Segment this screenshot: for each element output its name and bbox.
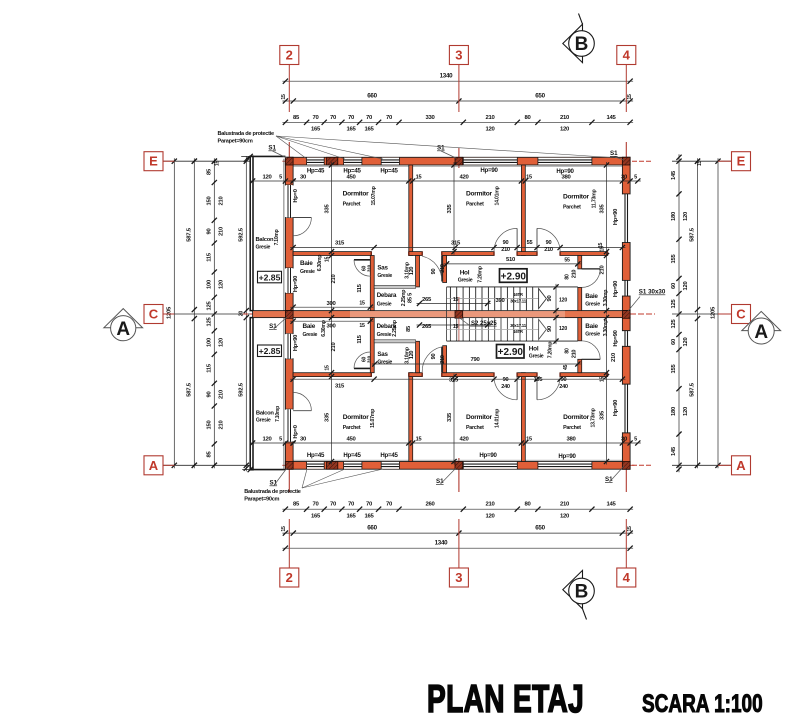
svg-text:70: 70 (312, 502, 319, 508)
svg-text:20: 20 (239, 311, 245, 317)
svg-text:145: 145 (671, 170, 677, 180)
svg-text:E: E (149, 154, 158, 169)
svg-text:120: 120 (683, 338, 689, 347)
svg-text:210: 210 (501, 247, 510, 253)
svg-text:90: 90 (547, 296, 553, 302)
svg-text:Hp=90: Hp=90 (558, 453, 576, 460)
svg-text:15: 15 (453, 324, 459, 330)
svg-text:335: 335 (324, 412, 330, 422)
svg-text:120: 120 (683, 212, 689, 221)
svg-text:335: 335 (599, 410, 605, 420)
svg-text:Balustrada de protectie: Balustrada de protectie (244, 489, 301, 495)
svg-text:3: 3 (455, 48, 462, 63)
svg-text:592.5: 592.5 (239, 382, 245, 396)
svg-text:15: 15 (359, 301, 365, 307)
svg-text:7.10mp: 7.10mp (274, 229, 280, 245)
svg-text:Gresie: Gresie (458, 278, 473, 284)
svg-text:Hp=0: Hp=0 (293, 425, 299, 438)
svg-text:210: 210 (440, 264, 446, 273)
svg-text:587.5: 587.5 (187, 382, 193, 396)
svg-text:Dormitor: Dormitor (563, 414, 590, 421)
svg-text:7.10mp: 7.10mp (275, 406, 281, 422)
svg-text:650: 650 (535, 93, 545, 100)
svg-text:13.73mp: 13.73mp (590, 408, 596, 427)
svg-text:165: 165 (346, 127, 356, 133)
svg-text:310: 310 (367, 264, 372, 272)
svg-text:1205: 1205 (167, 306, 173, 319)
svg-text:335: 335 (324, 204, 330, 214)
svg-text:2: 2 (286, 570, 293, 585)
svg-text:210: 210 (219, 227, 225, 236)
svg-text:510: 510 (506, 257, 516, 263)
svg-text:80: 80 (524, 115, 531, 121)
svg-text:6.30mp: 6.30mp (321, 320, 327, 336)
svg-text:Hp=45: Hp=45 (380, 452, 398, 459)
svg-text:16TR: 16TR (513, 329, 524, 334)
svg-text:210: 210 (331, 275, 337, 284)
svg-text:390: 390 (495, 298, 505, 304)
svg-text:180: 180 (671, 407, 677, 416)
svg-text:450: 450 (346, 437, 356, 443)
svg-text:E: E (737, 154, 746, 169)
svg-text:Hp=45: Hp=45 (343, 452, 361, 459)
svg-text:60: 60 (671, 283, 677, 289)
svg-text:Hol: Hol (529, 346, 539, 353)
svg-text:70: 70 (386, 502, 393, 508)
svg-text:15.07mp: 15.07mp (370, 409, 376, 428)
svg-text:210: 210 (560, 115, 570, 121)
svg-text:Baie: Baie (585, 293, 598, 300)
svg-text:Sas: Sas (377, 351, 388, 358)
svg-text:210: 210 (571, 270, 577, 279)
svg-text:Hp=45: Hp=45 (380, 168, 398, 175)
svg-text:B: B (575, 582, 589, 603)
svg-text:S2 25x25: S2 25x25 (471, 321, 497, 327)
svg-text:Parchet: Parchet (563, 425, 581, 431)
svg-text:1340: 1340 (440, 73, 454, 80)
svg-text:Gresie: Gresie (256, 245, 271, 251)
svg-text:S1: S1 (437, 145, 445, 152)
svg-text:15: 15 (627, 526, 633, 532)
svg-text:Hp=90: Hp=90 (613, 209, 619, 225)
svg-text:210: 210 (611, 353, 617, 362)
svg-text:120: 120 (219, 338, 225, 347)
svg-text:7.20mp: 7.20mp (478, 266, 484, 282)
svg-text:2: 2 (286, 48, 293, 63)
svg-text:Parchet: Parchet (466, 202, 484, 208)
svg-text:+2.90: +2.90 (498, 347, 524, 358)
svg-text:90: 90 (503, 240, 509, 246)
svg-text:Gresie: Gresie (303, 332, 318, 338)
svg-text:240: 240 (559, 384, 568, 390)
svg-text:210: 210 (440, 355, 446, 364)
svg-text:70: 70 (366, 115, 373, 121)
svg-text:A: A (736, 458, 746, 473)
svg-text:4: 4 (623, 48, 631, 63)
svg-text:30: 30 (300, 437, 307, 443)
svg-text:15: 15 (598, 243, 604, 249)
svg-text:Parapet=90cm: Parapet=90cm (218, 139, 253, 145)
svg-text:85: 85 (406, 326, 412, 332)
svg-text:+2.85: +2.85 (259, 272, 281, 282)
svg-text:5: 5 (279, 437, 282, 443)
svg-text:650: 650 (535, 525, 545, 532)
svg-text:Parchet: Parchet (466, 425, 484, 431)
svg-text:Gresie: Gresie (377, 332, 392, 338)
svg-text:180: 180 (671, 212, 677, 221)
svg-text:85: 85 (207, 451, 213, 458)
svg-text:14.01mp: 14.01mp (495, 186, 501, 205)
svg-text:120: 120 (485, 127, 495, 133)
svg-text:15: 15 (453, 297, 459, 303)
svg-text:Baie: Baie (585, 323, 598, 330)
svg-text:Gresie: Gresie (585, 332, 600, 338)
svg-text:16TR: 16TR (513, 292, 524, 297)
svg-text:90: 90 (207, 392, 213, 398)
svg-text:210: 210 (219, 390, 225, 399)
svg-text:85 5: 85 5 (407, 293, 413, 303)
svg-text:100: 100 (207, 280, 213, 289)
svg-text:300: 300 (326, 324, 336, 330)
svg-text:85: 85 (293, 115, 300, 121)
svg-text:85: 85 (207, 168, 213, 175)
svg-text:Parchet: Parchet (343, 202, 361, 208)
svg-text:335: 335 (599, 204, 605, 214)
svg-text:A: A (754, 322, 768, 343)
svg-text:380: 380 (566, 437, 576, 443)
svg-text:11.73mp: 11.73mp (592, 190, 598, 209)
svg-text:Baie: Baie (303, 323, 316, 330)
svg-text:335: 335 (447, 412, 453, 422)
svg-text:PLAN ETAJ: PLAN ETAJ (427, 678, 584, 720)
svg-text:80: 80 (524, 502, 531, 508)
svg-text:Hp=90: Hp=90 (293, 335, 299, 351)
svg-text:SCARA 1:100: SCARA 1:100 (642, 689, 763, 717)
svg-text:210: 210 (485, 502, 495, 508)
svg-text:210: 210 (571, 350, 577, 359)
svg-text:90: 90 (561, 377, 567, 383)
svg-text:120: 120 (683, 282, 689, 291)
svg-text:165: 165 (311, 514, 321, 520)
svg-text:380: 380 (561, 175, 571, 181)
svg-text:70: 70 (330, 502, 337, 508)
svg-text:Gresie: Gresie (529, 354, 544, 360)
svg-text:S1: S1 (610, 150, 618, 157)
svg-text:30: 30 (621, 437, 628, 443)
svg-text:15: 15 (526, 437, 532, 443)
svg-text:70: 70 (312, 115, 319, 121)
svg-text:260: 260 (425, 502, 435, 508)
svg-text:Hp=90: Hp=90 (556, 168, 574, 175)
svg-text:125: 125 (207, 317, 213, 327)
svg-text:165: 165 (311, 127, 321, 133)
svg-text:115: 115 (207, 252, 213, 262)
svg-text:660: 660 (367, 525, 377, 532)
svg-text:30: 30 (621, 175, 628, 181)
svg-text:Sas: Sas (377, 264, 388, 271)
svg-text:125: 125 (671, 319, 677, 329)
svg-text:Gresie: Gresie (377, 273, 392, 279)
svg-text:Dormitor: Dormitor (466, 414, 493, 421)
svg-text:115: 115 (207, 363, 213, 373)
svg-text:330: 330 (425, 115, 435, 121)
svg-text:Balcon: Balcon (256, 237, 275, 243)
svg-text:55: 55 (564, 258, 570, 264)
svg-text:15: 15 (281, 526, 287, 532)
svg-text:90: 90 (431, 269, 437, 275)
svg-text:300: 300 (326, 301, 336, 307)
svg-text:Parapet=90cm: Parapet=90cm (244, 497, 279, 503)
svg-text:45: 45 (563, 365, 569, 371)
svg-text:120: 120 (409, 267, 415, 276)
svg-text:587.5: 587.5 (690, 227, 696, 241)
svg-text:100: 100 (207, 338, 213, 347)
svg-text:Dormitor: Dormitor (466, 191, 493, 198)
svg-text:60: 60 (671, 339, 677, 345)
svg-text:155: 155 (671, 254, 677, 264)
svg-text:587.5: 587.5 (690, 382, 696, 396)
svg-text:A: A (116, 319, 130, 340)
svg-text:Hp=90: Hp=90 (480, 167, 498, 174)
svg-text:Hp=90: Hp=90 (293, 276, 299, 292)
svg-text:Hp=90: Hp=90 (613, 400, 619, 416)
svg-text:240: 240 (501, 384, 510, 390)
svg-text:3.30mp: 3.30mp (603, 290, 609, 306)
svg-text:Hp=45: Hp=45 (307, 452, 325, 459)
svg-text:165: 165 (364, 127, 374, 133)
svg-text:Dormitor: Dormitor (343, 191, 370, 198)
svg-text:4: 4 (623, 570, 631, 585)
svg-text:70: 70 (386, 115, 393, 121)
svg-text:Gresie: Gresie (300, 269, 315, 275)
svg-text:15: 15 (416, 175, 422, 181)
svg-text:+2.90: +2.90 (501, 272, 527, 283)
svg-text:15: 15 (281, 94, 287, 100)
svg-text:Debara: Debara (377, 292, 397, 299)
svg-text:Hp=45: Hp=45 (343, 168, 361, 175)
svg-text:120: 120 (262, 437, 272, 443)
svg-text:120: 120 (560, 127, 570, 133)
svg-text:Hp=90: Hp=90 (479, 452, 497, 459)
svg-text:30x17.11: 30x17.11 (510, 299, 527, 304)
svg-text:2.25mp: 2.25mp (401, 290, 407, 306)
svg-text:120: 120 (219, 280, 225, 289)
svg-text:70: 70 (330, 115, 337, 121)
svg-text:Parchet: Parchet (343, 425, 361, 431)
svg-text:150: 150 (207, 197, 213, 206)
svg-text:120: 120 (409, 351, 415, 360)
svg-text:Parchet: Parchet (563, 205, 581, 211)
svg-text:790: 790 (470, 357, 480, 363)
svg-text:5: 5 (634, 175, 637, 181)
svg-text:210: 210 (219, 197, 225, 206)
svg-text:Hp=90: Hp=90 (613, 330, 619, 346)
svg-text:450: 450 (346, 175, 356, 181)
svg-text:310: 310 (367, 355, 372, 363)
svg-text:15: 15 (416, 437, 422, 443)
svg-text:145: 145 (606, 502, 616, 508)
svg-text:Gresie: Gresie (377, 302, 392, 308)
svg-text:165: 165 (364, 514, 374, 520)
svg-text:335: 335 (447, 204, 453, 214)
svg-text:Gresie: Gresie (585, 302, 600, 308)
svg-text:115: 115 (357, 335, 363, 343)
svg-text:210: 210 (219, 421, 225, 430)
svg-text:1205: 1205 (711, 306, 717, 319)
svg-text:120: 120 (559, 326, 567, 332)
svg-text:70: 70 (348, 502, 355, 508)
svg-text:15: 15 (324, 257, 330, 263)
svg-text:3.30mp: 3.30mp (603, 320, 609, 336)
svg-text:120: 120 (262, 175, 272, 181)
svg-text:80: 80 (565, 348, 571, 354)
svg-text:Dormitor: Dormitor (563, 194, 590, 201)
svg-text:2.25mp: 2.25mp (392, 320, 398, 336)
svg-text:S1 30x30: S1 30x30 (639, 289, 666, 296)
svg-text:Dormitor: Dormitor (343, 414, 370, 421)
svg-text:55: 55 (527, 240, 533, 246)
svg-text:5: 5 (634, 437, 637, 443)
svg-text:C: C (149, 307, 159, 322)
svg-text:C: C (736, 307, 746, 322)
svg-text:90: 90 (431, 354, 437, 360)
svg-text:587.5: 587.5 (187, 227, 193, 241)
svg-text:90: 90 (207, 229, 213, 235)
svg-text:5: 5 (279, 175, 282, 181)
svg-text:14.01mp: 14.01mp (495, 409, 501, 428)
svg-text:592.5: 592.5 (239, 227, 245, 241)
svg-text:420: 420 (459, 175, 469, 181)
svg-text:Gresie: Gresie (256, 418, 271, 424)
svg-text:210: 210 (485, 115, 495, 121)
svg-text:S1: S1 (268, 145, 276, 152)
svg-text:90: 90 (546, 240, 552, 246)
svg-text:15: 15 (627, 94, 633, 100)
svg-text:1340: 1340 (435, 540, 449, 547)
svg-text:90: 90 (503, 377, 509, 383)
svg-text:Gresie: Gresie (377, 360, 392, 366)
svg-text:B: B (575, 34, 589, 55)
svg-text:15: 15 (359, 323, 365, 329)
svg-text:210: 210 (560, 502, 570, 508)
svg-text:85: 85 (293, 502, 300, 508)
svg-text:30: 30 (300, 175, 307, 181)
svg-text:420: 420 (459, 437, 469, 443)
svg-text:115: 115 (357, 284, 363, 292)
svg-text:150: 150 (207, 421, 213, 430)
svg-text:Hp=90: Hp=90 (613, 281, 619, 297)
svg-text:315: 315 (335, 384, 345, 390)
svg-text:315: 315 (449, 378, 459, 384)
svg-text:210: 210 (544, 247, 553, 253)
svg-text:145: 145 (606, 115, 616, 121)
svg-text:90: 90 (547, 326, 553, 332)
svg-text:Baie: Baie (300, 260, 313, 267)
svg-text:3: 3 (455, 570, 462, 585)
svg-text:120: 120 (559, 298, 567, 304)
svg-text:120: 120 (485, 514, 495, 520)
svg-text:80: 80 (565, 274, 571, 280)
svg-text:A: A (149, 458, 159, 473)
svg-text:15: 15 (324, 365, 330, 371)
svg-text:145: 145 (671, 446, 677, 456)
svg-text:315: 315 (451, 241, 461, 247)
svg-text:265: 265 (422, 324, 432, 330)
svg-text:Balustrada de protectie: Balustrada de protectie (218, 131, 275, 137)
svg-text:210: 210 (331, 343, 337, 352)
svg-text:70: 70 (366, 502, 373, 508)
svg-text:Hol: Hol (460, 270, 470, 277)
svg-text:Hp=45: Hp=45 (307, 168, 325, 175)
svg-text:7.20mp: 7.20mp (548, 342, 554, 358)
svg-text:15.07mp: 15.07mp (371, 186, 377, 205)
svg-text:120: 120 (560, 514, 570, 520)
svg-text:105: 105 (534, 377, 543, 383)
svg-text:Hp=0: Hp=0 (293, 189, 299, 202)
svg-text:165: 165 (346, 514, 356, 520)
svg-text:155: 155 (671, 364, 677, 374)
svg-text:120: 120 (683, 407, 689, 416)
svg-text:125: 125 (671, 299, 677, 309)
svg-text:15: 15 (526, 175, 532, 181)
svg-text:Balcon: Balcon (256, 411, 275, 417)
svg-text:660: 660 (367, 93, 377, 100)
svg-text:+2.85: +2.85 (259, 346, 281, 356)
svg-text:6.30mp: 6.30mp (317, 255, 323, 271)
svg-text:30x17.11: 30x17.11 (510, 323, 527, 328)
svg-text:125: 125 (207, 301, 213, 311)
svg-text:210: 210 (599, 266, 605, 275)
svg-text:315: 315 (335, 241, 345, 247)
svg-text:70: 70 (348, 115, 355, 121)
svg-text:265: 265 (422, 297, 432, 303)
